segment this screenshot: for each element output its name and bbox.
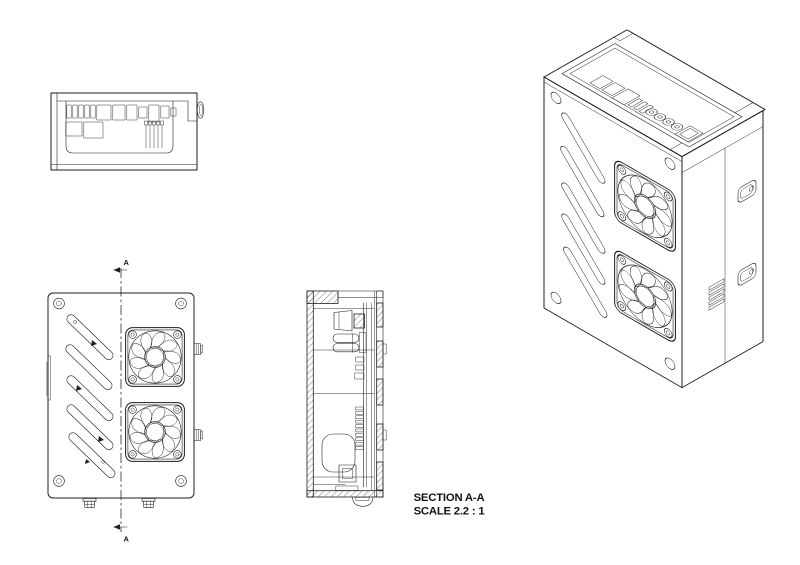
scale-note: SCALE 2.2 : 1 — [414, 506, 485, 518]
left-wall-hatch — [307, 291, 313, 497]
iso-clip-lower — [738, 262, 756, 287]
lid-corner-hatch — [307, 291, 338, 304]
top-view — [51, 93, 204, 170]
iso-top-face — [544, 30, 765, 157]
iso-side-vent — [709, 279, 724, 311]
pin-header — [145, 121, 164, 148]
foot-left — [83, 498, 96, 507]
foot-right — [142, 498, 155, 507]
section-marker-bottom: A — [124, 535, 130, 544]
fan-upper — [126, 328, 185, 387]
right-wall-hatch — [377, 303, 383, 490]
drawing-canvas: A A — [0, 0, 800, 565]
iso-right-face — [682, 111, 763, 388]
side-tab-lower — [194, 430, 203, 441]
corner-screws — [54, 298, 187, 486]
front-view: A A — [47, 258, 203, 544]
section-foot — [353, 497, 373, 506]
side-plug — [197, 102, 204, 118]
section-marker-top: A — [124, 258, 130, 267]
iso-fan-upper — [615, 158, 676, 254]
section-view — [307, 291, 386, 506]
side-tab-upper — [194, 344, 203, 355]
iso-front-face — [544, 77, 682, 388]
cad-drawing-sheet: A A — [0, 0, 800, 565]
section-components — [322, 311, 366, 491]
section-caption: SECTION A-A SCALE 2.2 : 1 — [414, 492, 485, 518]
vent-slots — [64, 313, 117, 479]
iso-vent-slots — [559, 108, 609, 322]
section-cut-line: A A — [114, 258, 130, 544]
bottom-wall-hatch — [307, 491, 383, 497]
iso-clip-upper — [738, 179, 756, 204]
section-title: SECTION A-A — [414, 492, 485, 504]
isometric-view — [544, 30, 765, 388]
iso-fan-lower — [615, 248, 676, 344]
fan-lower — [126, 403, 185, 462]
